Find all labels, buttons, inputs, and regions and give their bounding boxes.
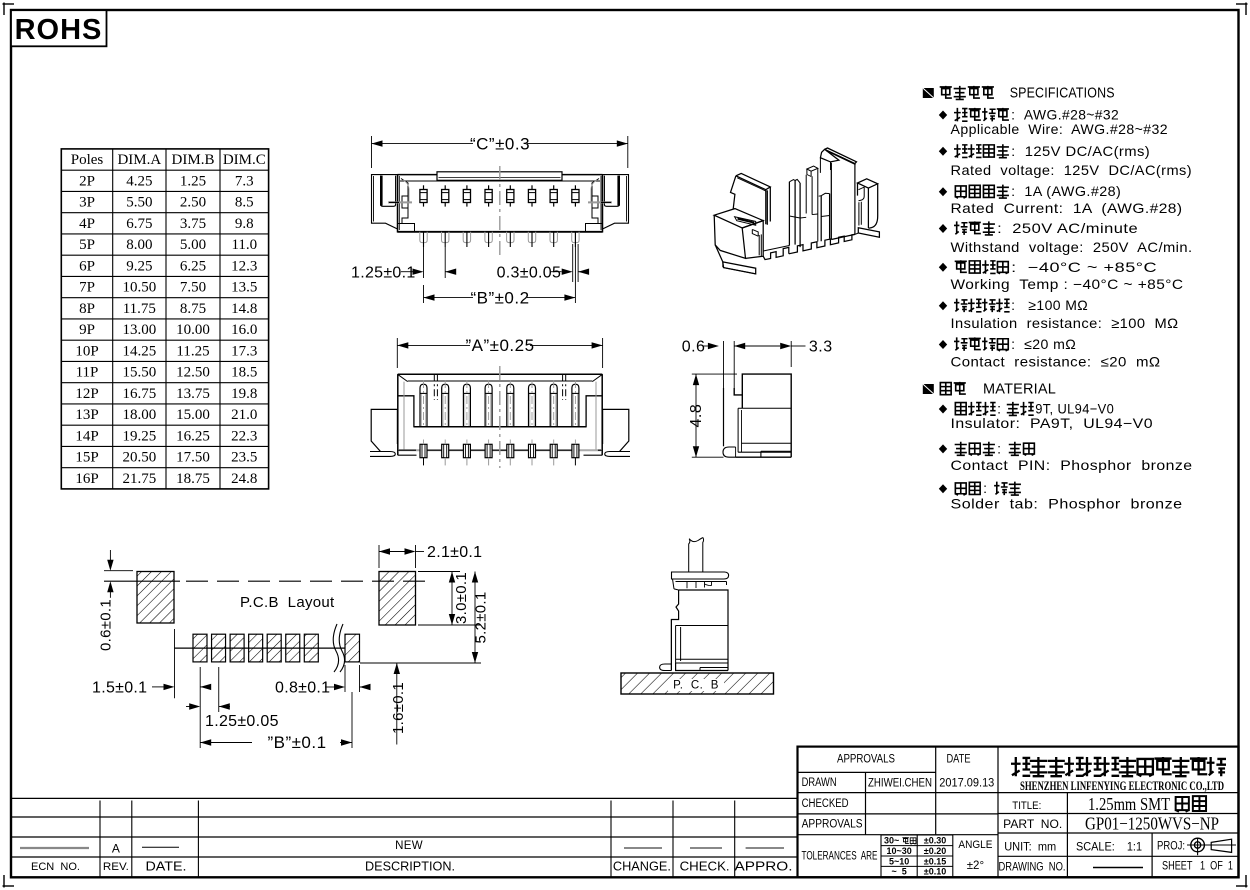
svg-text:1.25: 1.25 [180,173,206,189]
svg-text:: 1A (AWG.#28): : 1A (AWG.#28) [1011,183,1121,199]
svg-text:10.50: 10.50 [122,280,156,296]
svg-text:10P: 10P [75,343,98,359]
svg-text:13.5: 13.5 [231,280,257,296]
svg-text:SHEET 1 OF 1: SHEET 1 OF 1 [1162,859,1233,873]
svg-text:12P: 12P [75,386,98,402]
svg-text:9P: 9P [79,322,95,338]
svg-text:ECN NO.: ECN NO. [31,861,80,873]
svg-text:2017.09.13: 2017.09.13 [939,776,994,790]
svg-text:18.5: 18.5 [231,365,257,381]
svg-text:13.00: 13.00 [122,322,156,338]
svg-text:2P: 2P [79,173,95,189]
svg-text:DATE.: DATE. [146,859,187,873]
svg-text:Insulation resistance: ≥100: Insulation resistance: ≥100 MΩ [951,315,1179,331]
svg-text:5.50: 5.50 [126,195,152,211]
svg-text:4P: 4P [79,216,95,232]
svg-text:17.50: 17.50 [176,450,210,466]
svg-text:P. C. B: P. C. B [673,680,719,692]
svg-text:3.0±0.1: 3.0±0.1 [453,572,470,624]
svg-text:ANGLE: ANGLE [958,839,992,851]
svg-text:8.5: 8.5 [235,195,254,211]
svg-text::: : [997,440,1001,456]
svg-text:DESCRIPTION.: DESCRIPTION. [365,858,455,873]
svg-text:4.25: 4.25 [126,173,152,189]
svg-text:SCALE: 1:1: SCALE: 1:1 [1076,840,1142,854]
svg-text:DRAWING NO.: DRAWING NO. [999,860,1066,874]
svg-text:0.3±0.05: 0.3±0.05 [497,265,562,282]
svg-text:15.50: 15.50 [122,365,156,381]
svg-text:±0.30: ±0.30 [924,835,946,845]
svg-text:Working Temp : −40°C ~ +85°C: Working Temp : −40°C ~ +85°C [951,276,1184,292]
svg-text:”A”±0.25: ”A”±0.25 [465,336,534,355]
svg-text:APPROVALS: APPROVALS [802,819,863,831]
svg-text:DRAWN: DRAWN [802,777,837,789]
svg-text:CHECKED: CHECKED [802,798,849,810]
svg-text:±0.15: ±0.15 [924,856,946,866]
svg-text:1.5±0.1: 1.5±0.1 [92,680,147,697]
svg-text:Insulator: PA9T, UL94−V0: Insulator: PA9T, UL94−V0 [951,415,1154,431]
svg-text:: −40°C ~ +85°C: : −40°C ~ +85°C [1011,259,1157,275]
svg-text:: ≤20 mΩ: : ≤20 mΩ [1011,336,1076,352]
svg-text:11P: 11P [76,365,99,381]
svg-text:APPROVALS: APPROVALS [837,754,895,766]
svg-text:15.00: 15.00 [176,407,210,423]
svg-text:±0.10: ±0.10 [924,867,946,877]
svg-text:13.75: 13.75 [176,386,210,402]
svg-text:5.2±0.1: 5.2±0.1 [473,591,490,643]
svg-text:DIM.C: DIM.C [223,152,266,168]
svg-text:ZHIWEI.CHEN: ZHIWEI.CHEN [868,776,932,790]
svg-text:12.3: 12.3 [231,258,257,274]
svg-text:PROJ:: PROJ: [1157,839,1185,853]
svg-text:GP01−1250WVS−NP: GP01−1250WVS−NP [1085,814,1219,834]
svg-text:Rated Current: 1A (AWG.#28): Rated Current: 1A (AWG.#28) [951,200,1183,216]
svg-text:Rated voltage: 125V DC/AC(r: Rated voltage: 125V DC/AC(rms) [951,162,1193,178]
svg-text:±0.20: ±0.20 [924,846,946,856]
svg-text:1.6±0.1: 1.6±0.1 [390,682,407,734]
svg-text:11.25: 11.25 [176,343,209,359]
svg-text:DATE: DATE [947,754,971,766]
svg-text:7.50: 7.50 [180,280,206,296]
svg-text:2.50: 2.50 [180,195,206,211]
svg-text:9.25: 9.25 [126,258,152,274]
svg-text:5.00: 5.00 [180,237,206,253]
svg-text:: 250V AC/minute: : 250V AC/minute [997,220,1138,236]
svg-text::: : [983,480,987,496]
svg-text:20.50: 20.50 [122,450,156,466]
svg-text:5P: 5P [79,237,95,253]
svg-text:3P: 3P [79,195,95,211]
svg-text:21.75: 21.75 [122,471,156,487]
svg-text:NEW: NEW [395,840,423,852]
svg-text:12.50: 12.50 [176,365,210,381]
svg-text:0.6±0.1: 0.6±0.1 [98,599,115,651]
svg-text:30~: 30~ [884,835,899,845]
svg-text:TOLERANCES ARE: TOLERANCES ARE [802,851,878,863]
svg-text:Poles: Poles [71,152,104,168]
svg-text:4.8: 4.8 [688,404,705,428]
svg-text:SHENZHEN LINFENYING ELECTRONIC: SHENZHEN LINFENYING ELECTRONIC CO.,LTD [1020,779,1224,793]
svg-text:6P: 6P [79,258,95,274]
svg-text:: 125V DC/AC(rms): : 125V DC/AC(rms) [1011,143,1150,159]
svg-text:8.00: 8.00 [126,237,152,253]
svg-text:10~30: 10~30 [886,846,911,856]
svg-text:16.75: 16.75 [122,386,156,402]
svg-text:ROHS: ROHS [15,14,103,46]
svg-text:14.25: 14.25 [122,343,156,359]
svg-text:8P: 8P [79,301,95,317]
svg-text:CHANGE.: CHANGE. [613,859,671,873]
svg-text:TITLE:: TITLE: [1012,800,1041,812]
svg-text:“C”±0.3: “C”±0.3 [470,135,530,154]
svg-text:6.25: 6.25 [180,258,206,274]
svg-text:19.8: 19.8 [231,386,257,402]
svg-text:1.25mm SMT: 1.25mm SMT [1088,794,1170,814]
svg-text:23.5: 23.5 [231,450,257,466]
svg-text:0.8±0.1: 0.8±0.1 [275,680,330,697]
svg-text:10.00: 10.00 [176,322,210,338]
svg-text:Solder tab: Phosphor bronze: Solder tab: Phosphor bronze [951,496,1183,512]
svg-text:11.75: 11.75 [123,301,156,317]
svg-text:8.75: 8.75 [180,301,206,317]
svg-text:0.6: 0.6 [682,339,706,356]
svg-text:UNIT: mm: UNIT: mm [1004,840,1056,854]
svg-text:P.C.B Layout: P.C.B Layout [240,594,335,611]
svg-text:17.3: 17.3 [231,343,257,359]
svg-text:7P: 7P [79,280,95,296]
svg-text:Withstand voltage: 250V AC/: Withstand voltage: 250V AC/min. [951,239,1193,255]
svg-text:19.25: 19.25 [122,428,156,444]
svg-text:22.3: 22.3 [231,428,257,444]
svg-text:13P: 13P [75,407,98,423]
svg-text:18.00: 18.00 [122,407,156,423]
svg-text:DIM.B: DIM.B [172,152,215,168]
svg-text:9.8: 9.8 [235,216,254,232]
svg-text:24.8: 24.8 [231,471,257,487]
svg-text:14P: 14P [75,428,98,444]
svg-text:”B”±0.1: ”B”±0.1 [267,733,326,752]
svg-text:~ 5: ~ 5 [891,867,906,877]
svg-text:CHECK.: CHECK. [680,859,730,873]
svg-text:±2°: ±2° [967,860,984,872]
svg-text:14.8: 14.8 [231,301,257,317]
svg-text:2.1±0.1: 2.1±0.1 [427,544,482,561]
svg-text:18.75: 18.75 [176,471,210,487]
svg-text:7.3: 7.3 [235,173,254,189]
svg-text:“B”±0.2: “B”±0.2 [470,288,529,307]
svg-text:11.0: 11.0 [231,237,257,253]
svg-text:16.0: 16.0 [231,322,257,338]
svg-text:MATERIAL: MATERIAL [983,382,1056,398]
svg-text:1.25±0.05: 1.25±0.05 [205,713,279,730]
svg-text:SPECIFICATIONS: SPECIFICATIONS [1010,86,1115,102]
svg-text:DIM.A: DIM.A [117,152,161,168]
svg-text:REV.: REV. [103,861,129,873]
svg-text:Applicable Wire: AWG.#28~#32: Applicable Wire: AWG.#28~#32 [951,121,1169,137]
svg-text:6.75: 6.75 [126,216,152,232]
svg-text:3.75: 3.75 [180,216,206,232]
svg-text:3.3: 3.3 [809,339,833,356]
svg-text:: ≥100 MΩ: : ≥100 MΩ [1011,297,1088,313]
svg-text:1.25±0.1: 1.25±0.1 [351,265,416,282]
svg-text:16P: 16P [75,471,98,487]
svg-text:PART NO.: PART NO. [1003,819,1062,831]
svg-text:5~10: 5~10 [889,856,909,866]
svg-text:APPRO.: APPRO. [735,859,793,873]
svg-text:21.0: 21.0 [231,407,257,423]
svg-text:A: A [112,842,120,856]
svg-text:15P: 15P [75,450,98,466]
svg-text:Contact PIN: Phosphor bronz: Contact PIN: Phosphor bronze [951,457,1193,473]
svg-text:16.25: 16.25 [176,428,210,444]
svg-text:Contact resistance: ≤20 mΩ: Contact resistance: ≤20 mΩ [951,353,1161,369]
